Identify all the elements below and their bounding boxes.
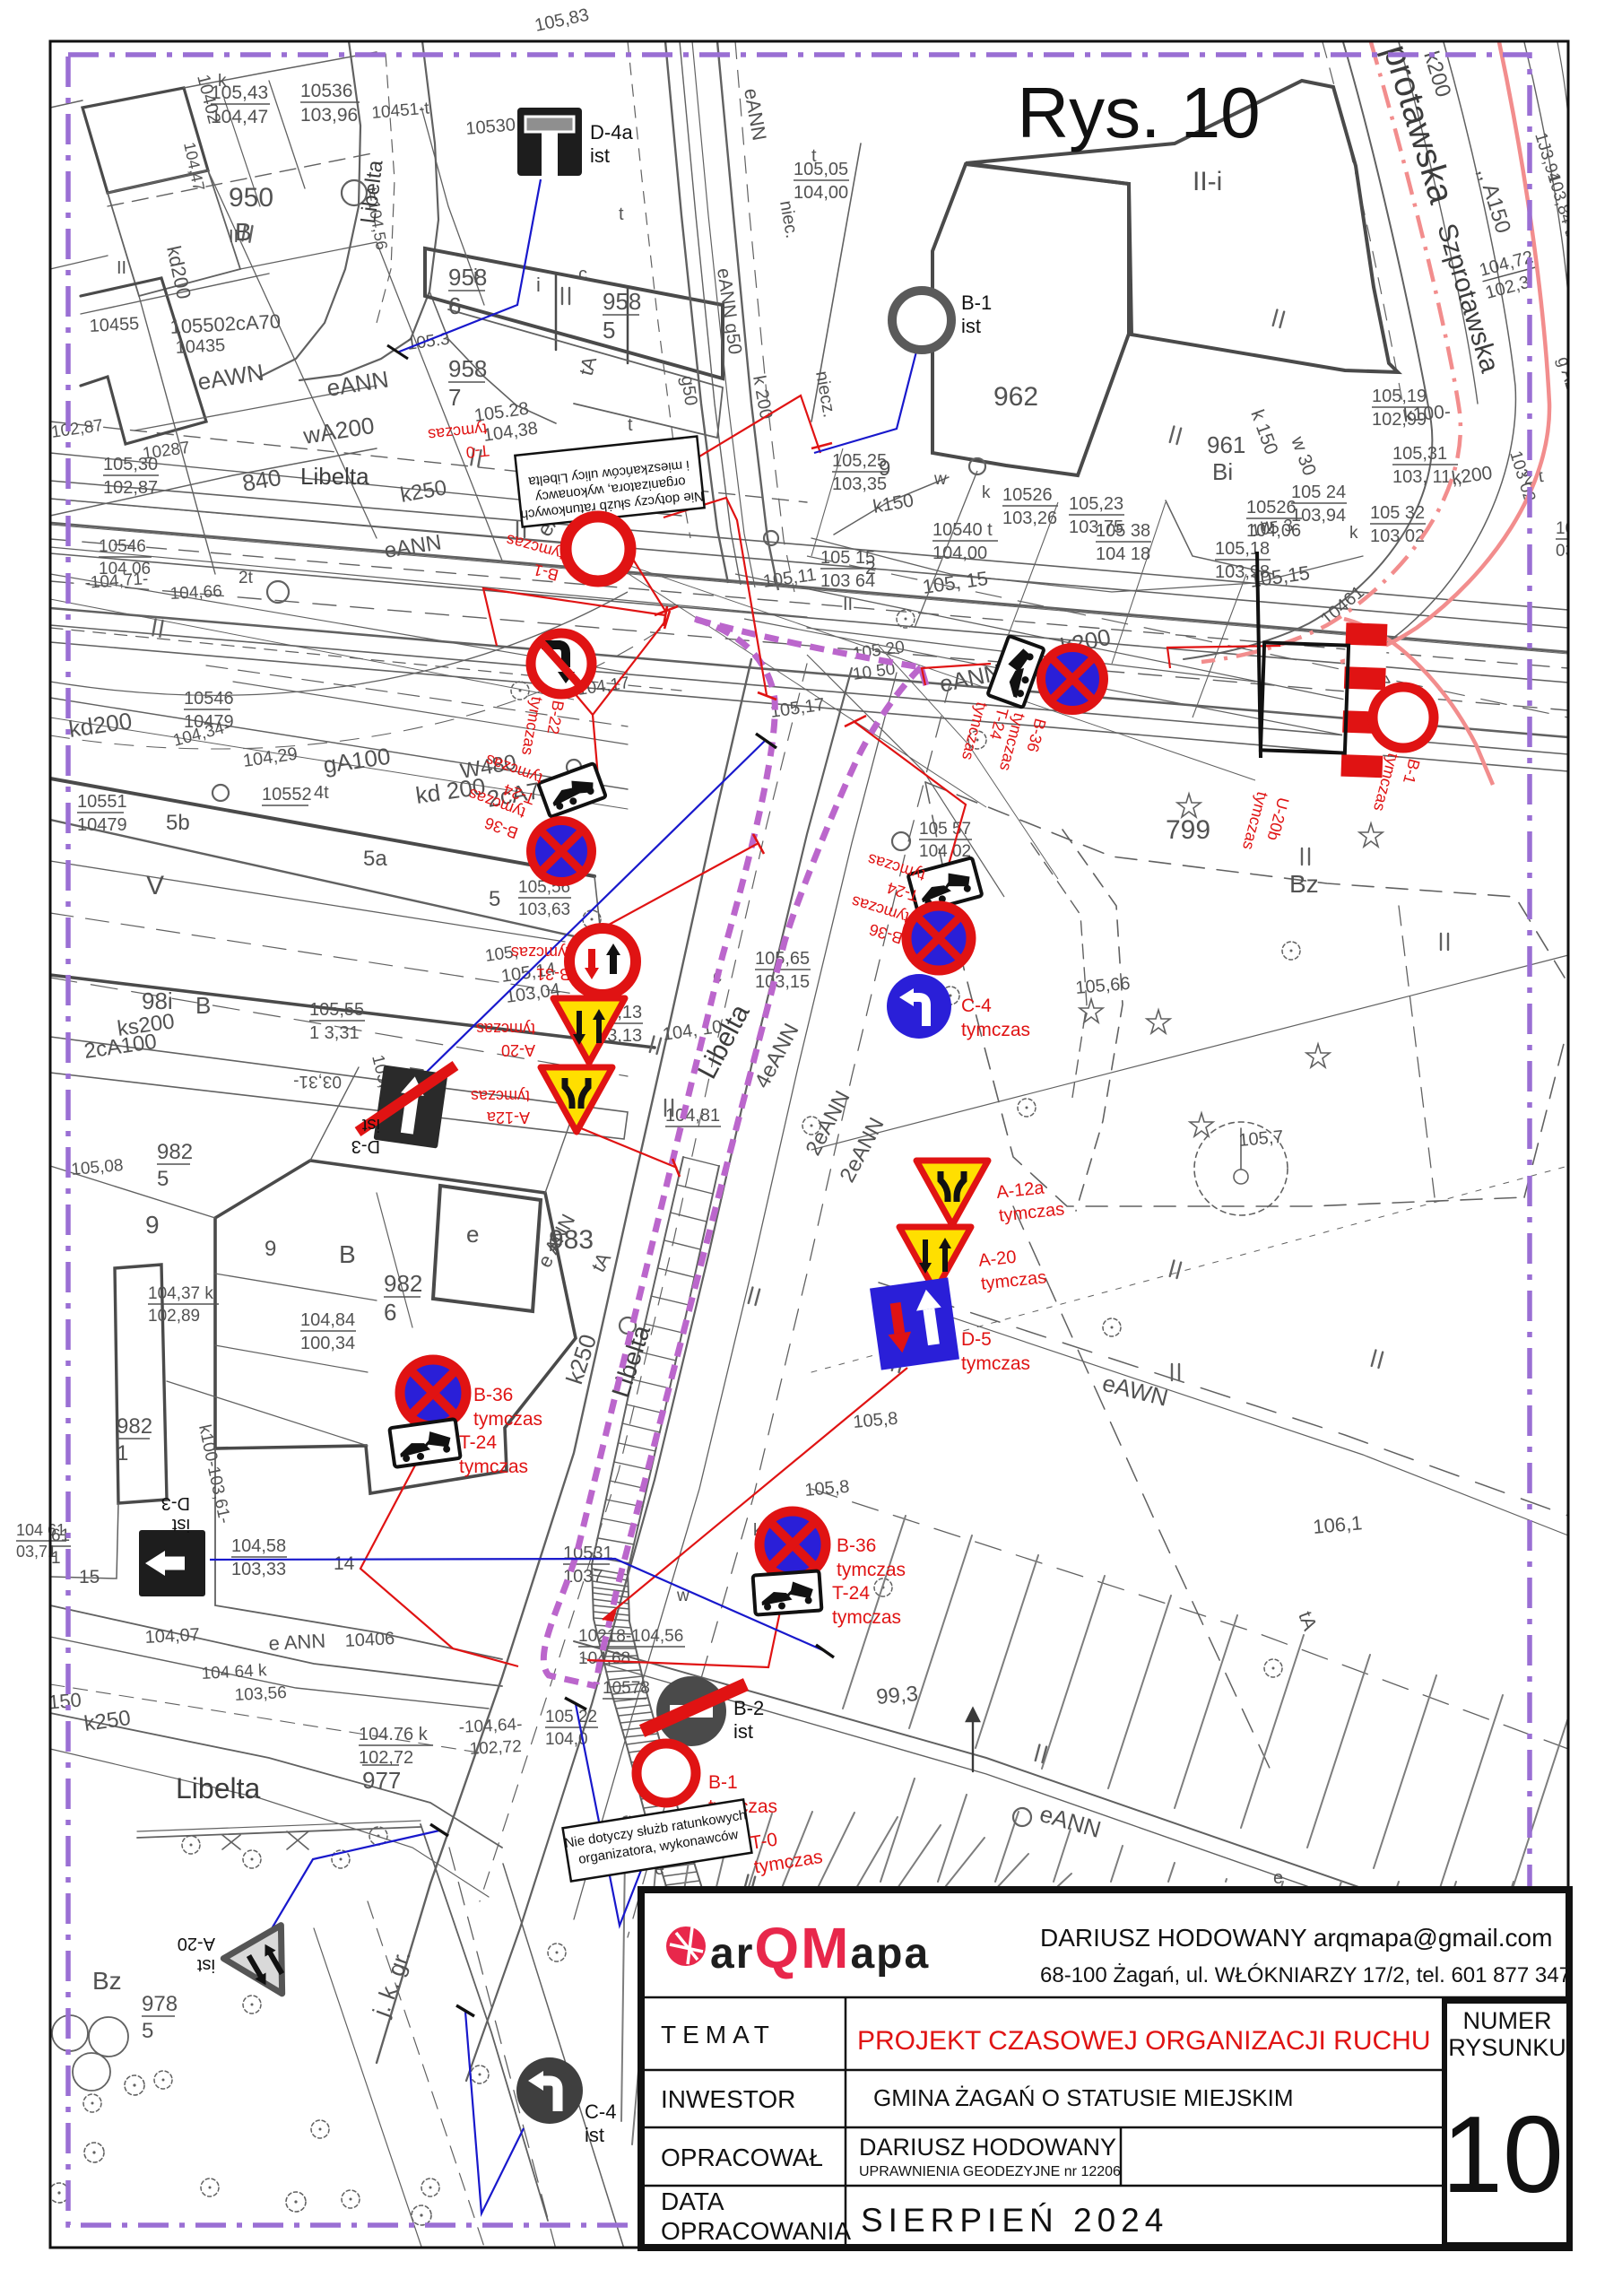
svg-text:tymczas: tymczas	[459, 1457, 528, 1477]
svg-text:II-i: II-i	[1193, 167, 1222, 196]
svg-text:B-1: B-1	[961, 291, 992, 314]
svg-text:tymczas: tymczas	[961, 1353, 1030, 1374]
svg-text:105,8: 105,8	[804, 1477, 851, 1500]
svg-text:105,8: 105,8	[853, 1409, 899, 1432]
svg-text:5b: 5b	[166, 811, 190, 835]
svg-text:T-24: T-24	[832, 1583, 870, 1604]
svg-text:104,66: 104,66	[169, 582, 222, 604]
svg-text:B: B	[339, 1240, 356, 1268]
svg-text:105,05: 105,05	[794, 160, 848, 179]
svg-text:10218-104,56: 10218-104,56	[578, 1627, 683, 1646]
svg-text:OPRACOWANIA: OPRACOWANIA	[661, 2217, 851, 2245]
svg-text:104,37 k: 104,37 k	[148, 1284, 213, 1303]
svg-text:9: 9	[879, 457, 890, 481]
svg-text:105,23: 105,23	[1069, 494, 1123, 514]
svg-text:e: e	[1273, 1868, 1283, 1888]
svg-text:B-31: B-31	[536, 965, 570, 983]
svg-text:g50: g50	[677, 375, 700, 407]
svg-text:10526: 10526	[1002, 485, 1053, 505]
svg-text:DARIUSZ HODOWANY arqmapa@gma: DARIUSZ HODOWANY arqmapa@gmail.com	[1040, 1924, 1552, 1952]
svg-text:14: 14	[334, 1553, 355, 1574]
svg-text:5: 5	[489, 887, 500, 911]
svg-text:k: k	[1349, 524, 1358, 543]
svg-text:10: 10	[1442, 2093, 1564, 2215]
svg-text:104,07: 104,07	[144, 1625, 200, 1648]
svg-text:II: II	[117, 258, 126, 278]
svg-text:102,89: 102,89	[148, 1307, 200, 1326]
svg-text:100,34: 100,34	[300, 1334, 355, 1353]
svg-text:105 22: 105 22	[545, 1708, 597, 1726]
svg-text:tymczas: tymczas	[471, 1087, 530, 1105]
svg-text:105,18: 105,18	[1215, 539, 1270, 559]
svg-text:104,00: 104,00	[794, 183, 848, 203]
svg-text:Bi: Bi	[1212, 458, 1233, 485]
svg-text:10546: 10546	[184, 689, 234, 709]
svg-text:03,31-: 03,31-	[293, 1072, 342, 1091]
svg-text:799: 799	[1166, 815, 1210, 845]
svg-text:950: 950	[229, 183, 273, 213]
svg-text:104,81: 104,81	[665, 1106, 720, 1126]
svg-text:102,72: 102,72	[469, 1737, 522, 1759]
svg-text:104,47: 104,47	[211, 107, 268, 127]
svg-text:104,68: 104,68	[578, 1649, 630, 1668]
svg-text:105 32: 105 32	[1370, 503, 1425, 523]
svg-text:103,98: 103,98	[1215, 562, 1270, 582]
svg-text:NUMER: NUMER	[1463, 2007, 1552, 2034]
svg-text:T-0: T-0	[465, 441, 490, 462]
svg-text:104,06: 104,06	[1246, 521, 1301, 541]
svg-text:UPRAWNIENIA GEODEZYJNE nr 1220: UPRAWNIENIA GEODEZYJNE nr 12206	[859, 2164, 1121, 2179]
svg-text:Libelta: Libelta	[300, 463, 369, 490]
svg-text:ist: ist	[197, 1955, 215, 1975]
svg-text:105,31: 105,31	[1392, 444, 1447, 464]
svg-text:B-36: B-36	[473, 1385, 513, 1405]
svg-text:10531: 10531	[563, 1544, 613, 1563]
svg-text:6: 6	[448, 292, 461, 319]
svg-text:977: 977	[362, 1767, 401, 1794]
svg-text:5: 5	[157, 1167, 169, 1191]
svg-text:B-1: B-1	[708, 1772, 738, 1793]
svg-text:10455: 10455	[89, 314, 140, 336]
svg-text:10546: 10546	[99, 537, 146, 556]
svg-text:ist: ist	[585, 2124, 604, 2146]
svg-text:104 18: 104 18	[1096, 544, 1150, 564]
svg-text:105 24: 105 24	[1291, 483, 1346, 502]
svg-text:962: 962	[993, 382, 1038, 412]
svg-text:104,00: 104,00	[932, 544, 987, 563]
svg-text:105 57: 105 57	[919, 820, 971, 839]
svg-text:A-20: A-20	[501, 1041, 535, 1059]
svg-text:A-12a: A-12a	[486, 1109, 530, 1126]
svg-text:e: e	[466, 1221, 479, 1248]
svg-text:B: B	[195, 992, 211, 1019]
svg-text:958: 958	[448, 264, 487, 291]
svg-text:DARIUSZ HODOWANY: DARIUSZ HODOWANY	[859, 2134, 1116, 2161]
svg-text:10540 t: 10540 t	[932, 520, 993, 540]
svg-text:5: 5	[142, 2019, 153, 2043]
svg-text:i: i	[473, 265, 478, 287]
svg-text:10479: 10479	[77, 815, 127, 835]
svg-text:t: t	[619, 204, 624, 224]
svg-text:ist: ist	[733, 1720, 753, 1743]
svg-text:Bz: Bz	[92, 1967, 122, 1995]
svg-text:104.76 k: 104.76 k	[359, 1725, 429, 1744]
svg-text:D-3: D-3	[161, 1493, 190, 1513]
svg-text:tymczas: tymczas	[832, 1607, 901, 1628]
svg-text:105,30: 105,30	[103, 455, 158, 474]
svg-text:T-0: T-0	[749, 1829, 779, 1853]
svg-text:10536: 10536	[300, 81, 352, 101]
svg-text:10435: 10435	[175, 335, 226, 358]
svg-text:k100-: k100-	[1402, 401, 1451, 425]
svg-text:k: k	[982, 483, 991, 502]
svg-text:10406: 10406	[344, 1629, 395, 1651]
svg-text:SIERPIEŃ 2024: SIERPIEŃ 2024	[861, 2202, 1168, 2239]
svg-text:105 15: 105 15	[820, 548, 875, 568]
svg-text:D-5: D-5	[961, 1329, 992, 1350]
svg-text:INWESTOR: INWESTOR	[661, 2085, 795, 2113]
svg-text:106,1: 106,1	[1312, 1511, 1363, 1538]
svg-text:1: 1	[117, 1441, 128, 1465]
svg-text:TEMAT: TEMAT	[661, 2021, 776, 2048]
svg-text:105,7: 105,7	[1238, 1127, 1285, 1151]
svg-text:10551: 10551	[77, 792, 127, 812]
svg-text:103,33: 103,33	[231, 1560, 286, 1579]
svg-text:RYSUNKU: RYSUNKU	[1448, 2034, 1566, 2061]
svg-text:10526: 10526	[1246, 498, 1297, 517]
svg-text:103,63: 103,63	[518, 900, 570, 919]
svg-text:982: 982	[157, 1140, 193, 1164]
svg-text:7: 7	[448, 384, 461, 411]
svg-text:15: 15	[79, 1567, 100, 1587]
svg-text:105,43: 105,43	[211, 83, 268, 103]
svg-text:Libelta: Libelta	[176, 1772, 261, 1805]
svg-text:A-20: A-20	[977, 1248, 1017, 1271]
svg-text:tymczas: tymczas	[511, 944, 570, 961]
svg-text:4t: 4t	[314, 783, 329, 803]
svg-text:103, 11: 103, 11	[1392, 467, 1451, 487]
svg-text:5a: 5a	[363, 847, 387, 871]
svg-text:w: w	[933, 470, 947, 489]
svg-text:C-4: C-4	[585, 2100, 616, 2123]
svg-text:OPRACOWAŁ: OPRACOWAŁ	[661, 2144, 823, 2171]
svg-text:tymczas: tymczas	[961, 1020, 1030, 1040]
svg-text:Rys. 10: Rys. 10	[1017, 73, 1260, 152]
svg-text:98i: 98i	[142, 987, 173, 1014]
svg-text:103 02: 103 02	[1370, 526, 1425, 546]
svg-text:105 38: 105 38	[1096, 521, 1150, 541]
svg-text:99,3: 99,3	[875, 1682, 919, 1709]
svg-text:104 61: 104 61	[16, 1521, 65, 1539]
svg-text:105,65: 105,65	[755, 949, 810, 969]
svg-text:103,15: 103,15	[755, 972, 810, 992]
svg-text:104,84: 104,84	[300, 1310, 355, 1330]
svg-text:tymczas: tymczas	[476, 1020, 535, 1038]
svg-text:982: 982	[384, 1270, 422, 1297]
svg-text:B-36: B-36	[837, 1535, 876, 1556]
svg-text:2t: 2t	[239, 569, 254, 587]
svg-text:ist: ist	[362, 1115, 380, 1135]
svg-text:103,96: 103,96	[300, 105, 358, 126]
svg-text:104,58: 104,58	[231, 1536, 286, 1556]
svg-text:e ANN: e ANN	[268, 1630, 326, 1655]
svg-text:9: 9	[145, 1211, 160, 1239]
svg-text:T-24: T-24	[459, 1432, 497, 1453]
svg-text:104 64 k: 104 64 k	[201, 1661, 267, 1683]
svg-text:B-2: B-2	[733, 1697, 764, 1719]
svg-text:D-3: D-3	[351, 1136, 380, 1156]
svg-text:t: t	[628, 415, 633, 435]
svg-text:10578: 10578	[603, 1679, 650, 1698]
svg-text:103 64: 103 64	[820, 571, 875, 591]
svg-text:68-100 Żagań, ul. WŁÓKNIARZY 1: 68-100 Żagań, ul. WŁÓKNIARZY 17/2, tel. …	[1040, 1963, 1571, 1987]
svg-text:958: 958	[448, 355, 487, 382]
svg-text:10552: 10552	[262, 785, 312, 804]
svg-text:V: V	[146, 871, 164, 900]
svg-text:5: 5	[603, 317, 615, 344]
svg-text:6: 6	[384, 1299, 396, 1326]
svg-text:GMINA ŻAGAŃ O STATUSIE MIEJSKI: GMINA ŻAGAŃ O STATUSIE MIEJSKIM	[873, 2084, 1294, 2111]
svg-text:103,56: 103,56	[234, 1683, 287, 1705]
svg-text:c: c	[578, 265, 587, 284]
svg-text:C-4: C-4	[961, 996, 992, 1016]
svg-text:102,87: 102,87	[103, 478, 158, 498]
svg-text:tymczas: tymczas	[837, 1560, 906, 1580]
svg-text:958: 958	[603, 288, 641, 315]
svg-text:9: 9	[265, 1237, 276, 1261]
svg-text:ist: ist	[590, 144, 610, 167]
svg-text:k: k	[549, 1237, 558, 1256]
svg-text:-104,64-: -104,64-	[458, 1715, 523, 1737]
svg-text:978: 978	[142, 1992, 178, 2016]
svg-text:D-4a: D-4a	[590, 121, 633, 143]
svg-text:A-20: A-20	[178, 1934, 215, 1953]
svg-text:105,55: 105,55	[309, 1000, 364, 1020]
svg-text:II: II	[229, 227, 239, 247]
svg-text:Bz: Bz	[1289, 870, 1319, 898]
svg-text:PROJEKT CZASOWEJ ORGANIZACJI R: PROJEKT CZASOWEJ ORGANIZACJI RUCHU	[857, 2026, 1431, 2056]
svg-text:961: 961	[1207, 431, 1245, 458]
svg-text:tymczas: tymczas	[473, 1409, 542, 1430]
svg-text:ist: ist	[172, 1515, 190, 1535]
svg-text:i: i	[536, 274, 541, 296]
svg-text:1 3,31: 1 3,31	[309, 1023, 360, 1043]
svg-text:ist: ist	[961, 315, 981, 337]
svg-text:982: 982	[117, 1414, 152, 1439]
svg-text:DATA: DATA	[661, 2187, 724, 2215]
